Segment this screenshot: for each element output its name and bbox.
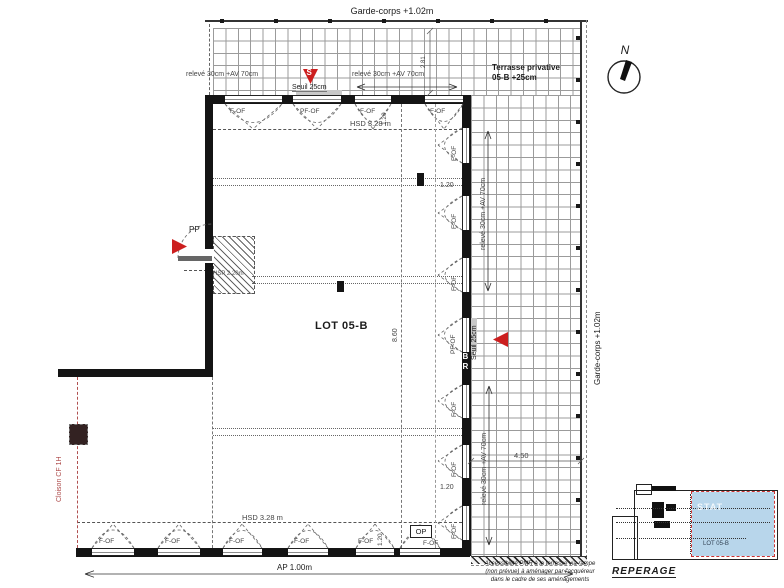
- releve-top-right-label: relevé 30cm +AV 70cm: [352, 71, 424, 78]
- fire-partition-line: [77, 377, 78, 548]
- keyplan-watermark: STAT: [697, 502, 723, 512]
- op-window-badge: OP: [410, 525, 432, 538]
- dim-450-label: 4.50: [514, 451, 529, 460]
- window-label-f-of: F-OF: [165, 538, 180, 545]
- window-bottom-6: [400, 548, 440, 556]
- window-label-f-of: F-OF: [423, 540, 438, 547]
- s-marker-letter: S: [307, 68, 312, 77]
- beam-line-3: [213, 428, 462, 436]
- window-bottom-1: [92, 548, 134, 556]
- terrace-grid-top: [213, 28, 581, 95]
- wall-step: [58, 369, 213, 377]
- guardrail-right-dashed: [586, 20, 587, 563]
- guardrail-top-posts: [220, 19, 580, 23]
- beam-line-2: [252, 276, 462, 284]
- entry-door-opening: [204, 249, 214, 263]
- column-1: [417, 173, 424, 186]
- beam-line-1: [213, 178, 462, 186]
- terrace-label: Terrasse privative 05-B +25cm: [492, 63, 584, 84]
- window-label-f-of: F-OF: [230, 108, 245, 115]
- keyplan-dotted-3: [616, 538, 746, 539]
- accessibility-note: Accessibilité PMR à la terrasse via ramp…: [483, 560, 597, 584]
- hsd-line-top: [213, 129, 462, 130]
- hsd-top-label: HSD 3.28 m: [350, 119, 391, 128]
- dim-281-label: 2.81: [421, 56, 427, 68]
- guardrail-top-label: Garde-corps +1.02m: [292, 6, 492, 16]
- axis-line-860: [401, 104, 402, 548]
- dim-120-label: 1.20: [440, 484, 454, 491]
- window-label-f-of: F-OF: [451, 524, 458, 539]
- releve-right-lower-label: relevé 30cm +AV 70cm: [481, 433, 488, 505]
- releve-top-left-label: relevé 30cm +AV 70cm: [186, 71, 258, 78]
- hsp-label: HSP 2.20m: [213, 271, 244, 277]
- window-right-5: [462, 445, 470, 478]
- lot-title: LOT 05-B: [315, 320, 368, 332]
- window-label-pf-of: PF-OF: [300, 108, 320, 115]
- hsd-line-bottom: [77, 522, 462, 523]
- keyplan-dotted-1: [616, 508, 770, 509]
- column-partition: [69, 424, 88, 445]
- seuil-top-label: Seuil 25cm: [292, 84, 327, 92]
- keyplan-roof-outline: [636, 484, 652, 495]
- seuil-right-label: Seuil 25cm: [471, 325, 478, 360]
- guardrail-right-label: Garde-corps +1.02m: [593, 311, 602, 385]
- accessibility-note-line3: dans le cadre de ses aménagements: [483, 576, 597, 584]
- axis-line-seuil: [435, 104, 436, 548]
- north-arrow: [608, 60, 640, 93]
- window-label-f-of: F-OF: [451, 276, 458, 291]
- window-label-f-of: F-OF: [451, 402, 458, 417]
- window-top-4: [425, 95, 463, 103]
- window-label-f-of: F-OF: [99, 538, 114, 545]
- window-bottom-2: [158, 548, 200, 556]
- wall-left: [205, 95, 213, 377]
- keyplan-core-bar: [652, 486, 676, 491]
- window-label-f-of: F-OF: [430, 108, 445, 115]
- fire-partition-label: Cloison CF 1H: [56, 456, 63, 502]
- window-right-3: [462, 258, 470, 292]
- pp-door-label: PP: [189, 225, 200, 234]
- duct-shaft-hatched: [213, 236, 255, 294]
- releve-right-upper-label: relevé 30cm +AV 70cm: [480, 178, 487, 250]
- floor-plan: Garde-corps +1.02m Garde-corps +1.02m Te…: [0, 0, 784, 588]
- keyplan-title: REPERAGE: [612, 566, 676, 578]
- window-right-1: [462, 128, 470, 163]
- terrace-left-dashed: [209, 24, 210, 95]
- window-right-pf: [462, 318, 470, 352]
- window-right-2: [462, 196, 470, 230]
- red-markers: [172, 69, 508, 347]
- window-top-3: [355, 95, 391, 103]
- window-right-4: [462, 385, 470, 418]
- column-2: [337, 281, 344, 292]
- window-bottom-3: [223, 548, 262, 556]
- window-bottom-4: [288, 548, 328, 556]
- guardrail-right-posts: [576, 36, 580, 556]
- keyplan-core-1: [652, 502, 664, 518]
- dim-860-label: 8.60: [392, 328, 399, 342]
- window-top-1: [225, 95, 282, 103]
- wall-watermark-letters: BR: [463, 352, 471, 373]
- terrace-label-line2: 05-B +25cm: [492, 73, 584, 83]
- ap-dimension-label: AP 1.00m: [277, 563, 312, 572]
- window-label-f-of: F-OF: [358, 538, 373, 545]
- keyplan-dotted-v: [690, 494, 691, 554]
- hsd-bottom-label: HSD 3.28 m: [242, 513, 283, 522]
- north-label: N: [615, 43, 635, 57]
- north-needle: [620, 60, 632, 81]
- window-right-6: [462, 506, 470, 540]
- window-top-2: [293, 95, 341, 103]
- window-label-f-of: F-OF: [229, 538, 244, 545]
- terrace-label-line1: Terrasse privative: [492, 63, 584, 73]
- axis-line-left: [212, 377, 213, 548]
- keyplan-dotted-2: [616, 522, 770, 523]
- guardrail-right-line: [580, 20, 582, 563]
- entrance-marker-pp: [172, 239, 187, 254]
- keyplan-lot-label: LOT 05-B: [703, 541, 729, 547]
- window-bottom-5: [356, 548, 394, 556]
- window-label-f-of: F-OF: [294, 538, 309, 545]
- window-label-f-of: F-OF: [451, 462, 458, 477]
- window-label-f-of: F-OF: [360, 108, 375, 115]
- window-label-f-of: F-OF: [451, 146, 458, 161]
- accessibility-note-line1: Accessibilité PMR à la terrasse via ramp…: [483, 560, 597, 568]
- accessibility-note-line2: (non prévue) à aménager par l'acquéreur: [483, 568, 597, 576]
- dim-120-label: 1.20: [440, 182, 454, 189]
- dim-120-label: 1.20: [377, 533, 384, 546]
- window-swing-arcs: [92, 104, 463, 548]
- window-label-f-of: F-OF: [451, 214, 458, 229]
- window-label-pf-of: PF-OF: [450, 335, 457, 355]
